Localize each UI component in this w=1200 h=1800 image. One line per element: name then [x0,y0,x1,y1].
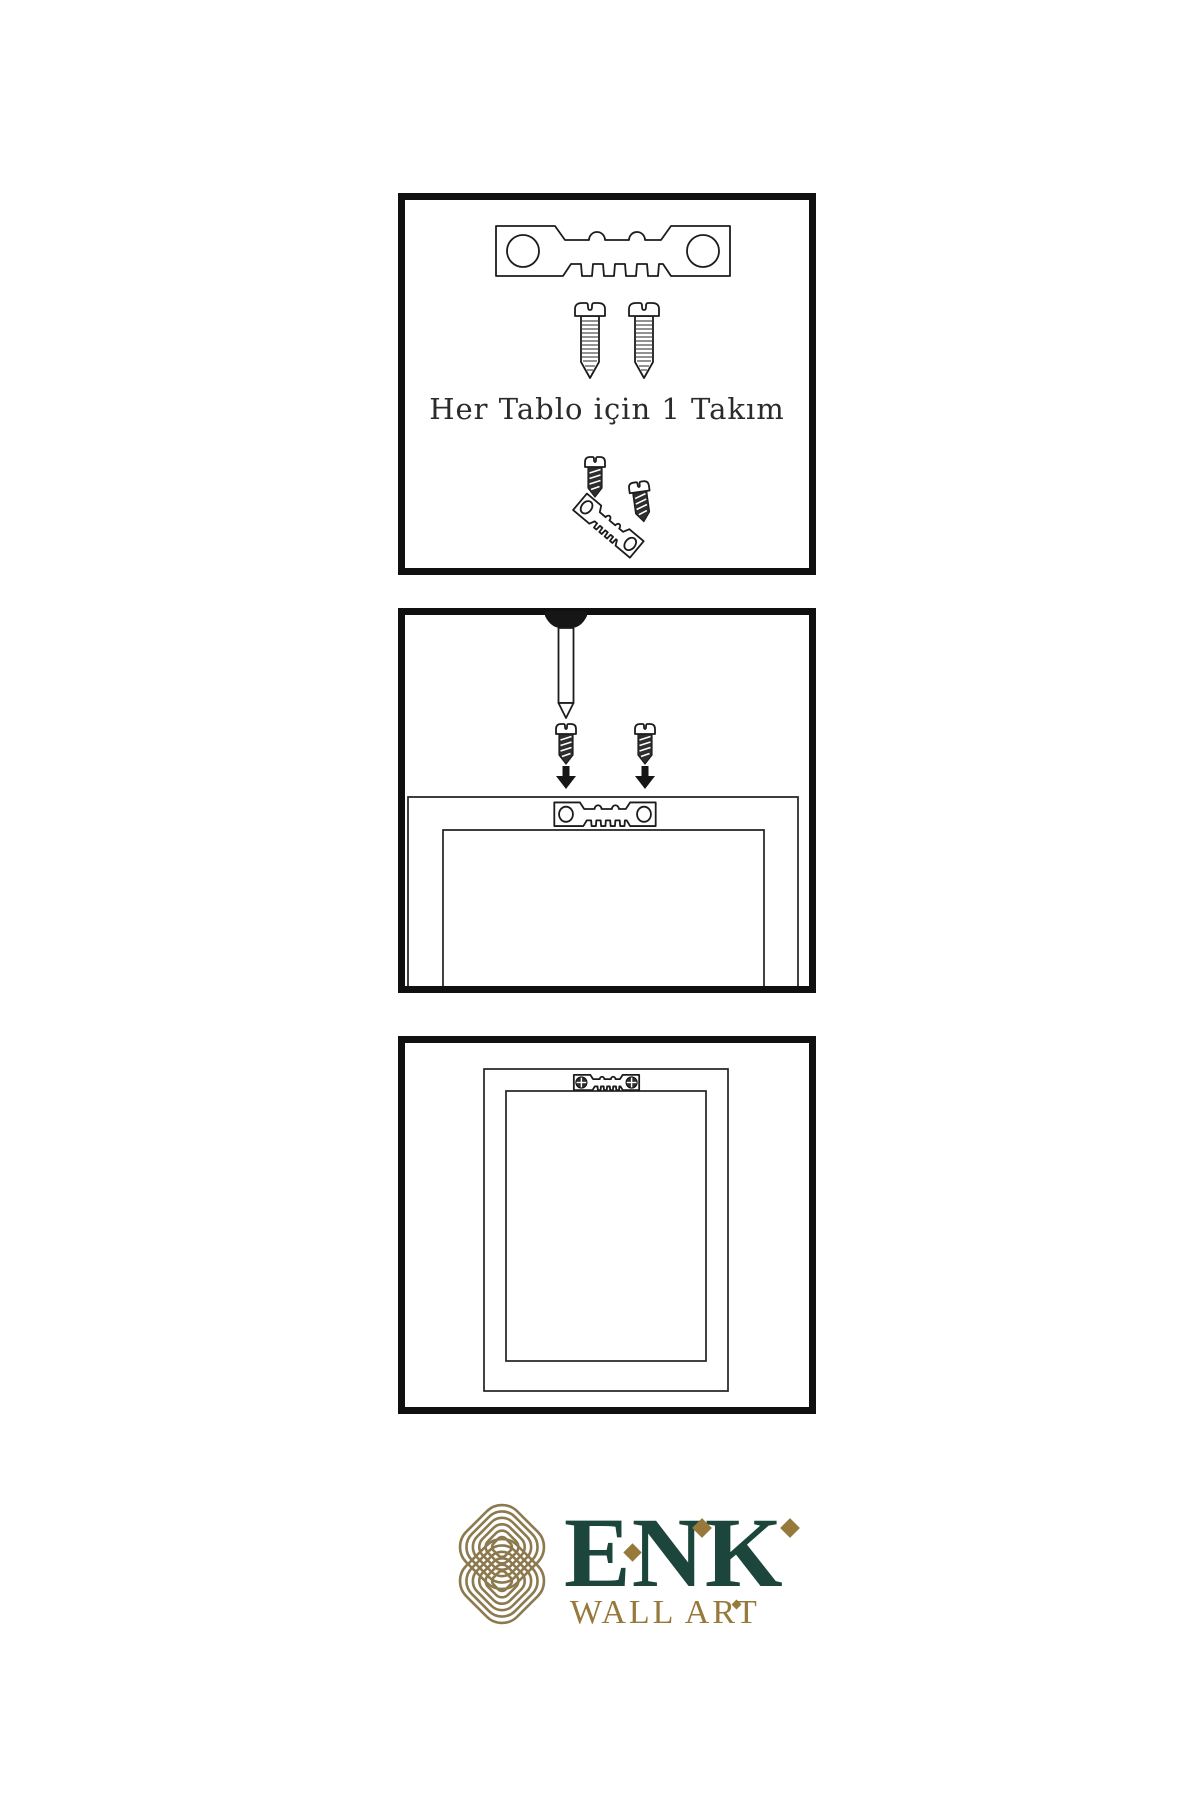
dark-screw-icon [635,724,655,764]
screw-icon [629,303,659,378]
dark-screw-icon [628,481,653,523]
instruction-sheet: Her Tablo için 1 Takım [0,0,1200,1800]
down-arrow-icon [635,766,655,789]
dark-screw-icon [556,724,576,764]
phillips-screw-head-icon [626,1077,637,1088]
brand-tagline: WALL ART [570,1596,760,1630]
installation-illustration [405,615,809,986]
hardware-kit-illustration [405,200,809,568]
hung-frame-illustration [405,1043,809,1407]
kit-caption: Her Tablo için 1 Takım [398,392,816,426]
frame-front-outline [484,1069,728,1391]
wall-nail-icon [545,611,587,718]
sawtooth-hanger-icon [496,226,730,276]
down-arrow-icon [556,766,576,789]
phillips-screw-head-icon [576,1077,587,1088]
sawtooth-hanger-icon [554,802,655,826]
tilted-sawtooth-hanger-icon [573,494,644,558]
screw-icon [575,303,605,378]
brand-knot-icon [438,1500,566,1628]
brand-name: ENK [564,1503,784,1603]
dark-screw-icon [585,457,605,497]
